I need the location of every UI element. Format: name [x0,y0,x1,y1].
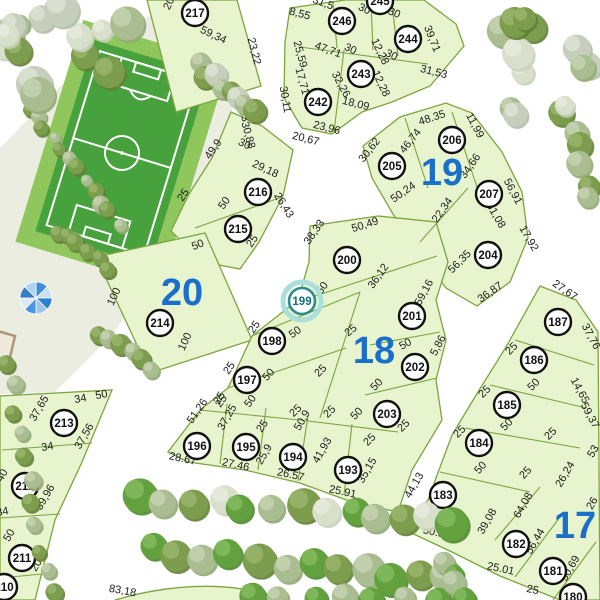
svg-text:185: 185 [497,400,517,412]
svg-text:207: 207 [479,189,498,201]
dimension-label: 34 [40,440,54,454]
svg-text:210: 210 [0,582,14,594]
svg-text:196: 196 [187,441,206,453]
parcel-marker-194[interactable]: 194 [280,444,306,470]
svg-text:213: 213 [54,418,73,430]
svg-text:186: 186 [524,355,543,367]
svg-text:244: 244 [398,34,418,46]
parcel-marker-186[interactable]: 186 [521,347,547,373]
svg-text:211: 211 [13,553,32,565]
svg-text:243: 243 [351,69,370,81]
svg-text:242: 242 [308,97,327,109]
umbrella-icon [20,282,52,314]
parcel-marker-207[interactable]: 207 [476,181,502,207]
svg-text:181: 181 [543,566,563,578]
parcel-marker-215[interactable]: 215 [225,216,251,242]
svg-text:217: 217 [185,8,204,20]
parcel-marker-198[interactable]: 198 [259,328,285,354]
parcel-marker-182[interactable]: 182 [503,531,529,557]
svg-text:195: 195 [236,442,256,454]
parcel-marker-242[interactable]: 242 [305,89,331,115]
dimension-label: 50 [94,388,108,402]
parcel-marker-201[interactable]: 201 [399,303,425,329]
parcel-marker-203[interactable]: 203 [374,401,400,427]
parcel-marker-183[interactable]: 183 [430,482,456,508]
svg-text:182: 182 [506,539,525,551]
parcel-marker-196[interactable]: 196 [184,433,210,459]
parcel-marker-195[interactable]: 195 [233,434,259,460]
block-number-20: 20 [161,272,203,314]
svg-text:202: 202 [405,362,424,374]
svg-text:184: 184 [469,438,489,450]
parcel-marker-197[interactable]: 197 [234,367,260,393]
selected-parcel-marker-199[interactable]: 199 [283,282,321,320]
svg-text:216: 216 [248,187,267,199]
parcel-marker-206[interactable]: 206 [439,127,465,153]
svg-text:205: 205 [382,161,402,173]
parcel-marker-184[interactable]: 184 [466,430,492,456]
parcel-marker-180[interactable]: 180 [560,584,586,600]
svg-text:245: 245 [370,0,390,8]
parcel-marker-185[interactable]: 185 [494,392,520,418]
parcel-marker-245[interactable]: 245 [367,0,393,14]
svg-text:198: 198 [262,336,282,348]
svg-text:197: 197 [237,375,256,387]
svg-text:183: 183 [433,490,452,502]
parcel-marker-205[interactable]: 205 [379,153,405,179]
svg-text:199: 199 [292,296,311,308]
parcel-marker-210[interactable]: 210 [0,574,17,600]
parcel-marker-217[interactable]: 217 [182,0,208,26]
block-number-17: 17 [554,505,596,547]
parcel-marker-211[interactable]: 211 [9,545,35,571]
parcel-marker-204[interactable]: 204 [475,242,501,268]
svg-text:215: 215 [228,224,248,236]
svg-text:204: 204 [478,250,498,262]
map-svg[interactable]: 2059,3423,228,5531,5303039,7125,5947,713… [0,0,600,600]
block-number-19: 19 [421,152,463,194]
svg-text:193: 193 [338,465,357,477]
parcel-marker-187[interactable]: 187 [545,309,571,335]
svg-text:214: 214 [150,318,170,330]
svg-text:180: 180 [563,592,582,600]
svg-text:203: 203 [377,409,396,421]
svg-text:246: 246 [332,16,351,28]
parcel-map-canvas[interactable]: 2059,3423,228,5531,5303039,7125,5947,713… [0,0,600,600]
parcel-marker-200[interactable]: 200 [334,247,360,273]
parcel-marker-243[interactable]: 243 [348,61,374,87]
svg-text:187: 187 [548,317,567,329]
parcel-marker-246[interactable]: 246 [329,8,355,34]
block-number-18: 18 [353,330,395,372]
parcel-marker-216[interactable]: 216 [245,179,271,205]
dimension-label: 34 [73,392,87,406]
svg-text:201: 201 [402,311,422,323]
svg-text:206: 206 [442,135,461,147]
parcel-marker-214[interactable]: 214 [147,310,173,336]
parcel-marker-193[interactable]: 193 [335,457,361,483]
parcel-marker-181[interactable]: 181 [540,558,566,584]
parcel-marker-202[interactable]: 202 [402,354,428,380]
dimension-label: 25 [525,583,539,597]
svg-text:194: 194 [283,452,303,464]
svg-text:200: 200 [337,255,356,267]
parcel-marker-213[interactable]: 213 [51,410,77,436]
parcel-marker-244[interactable]: 244 [395,26,421,52]
